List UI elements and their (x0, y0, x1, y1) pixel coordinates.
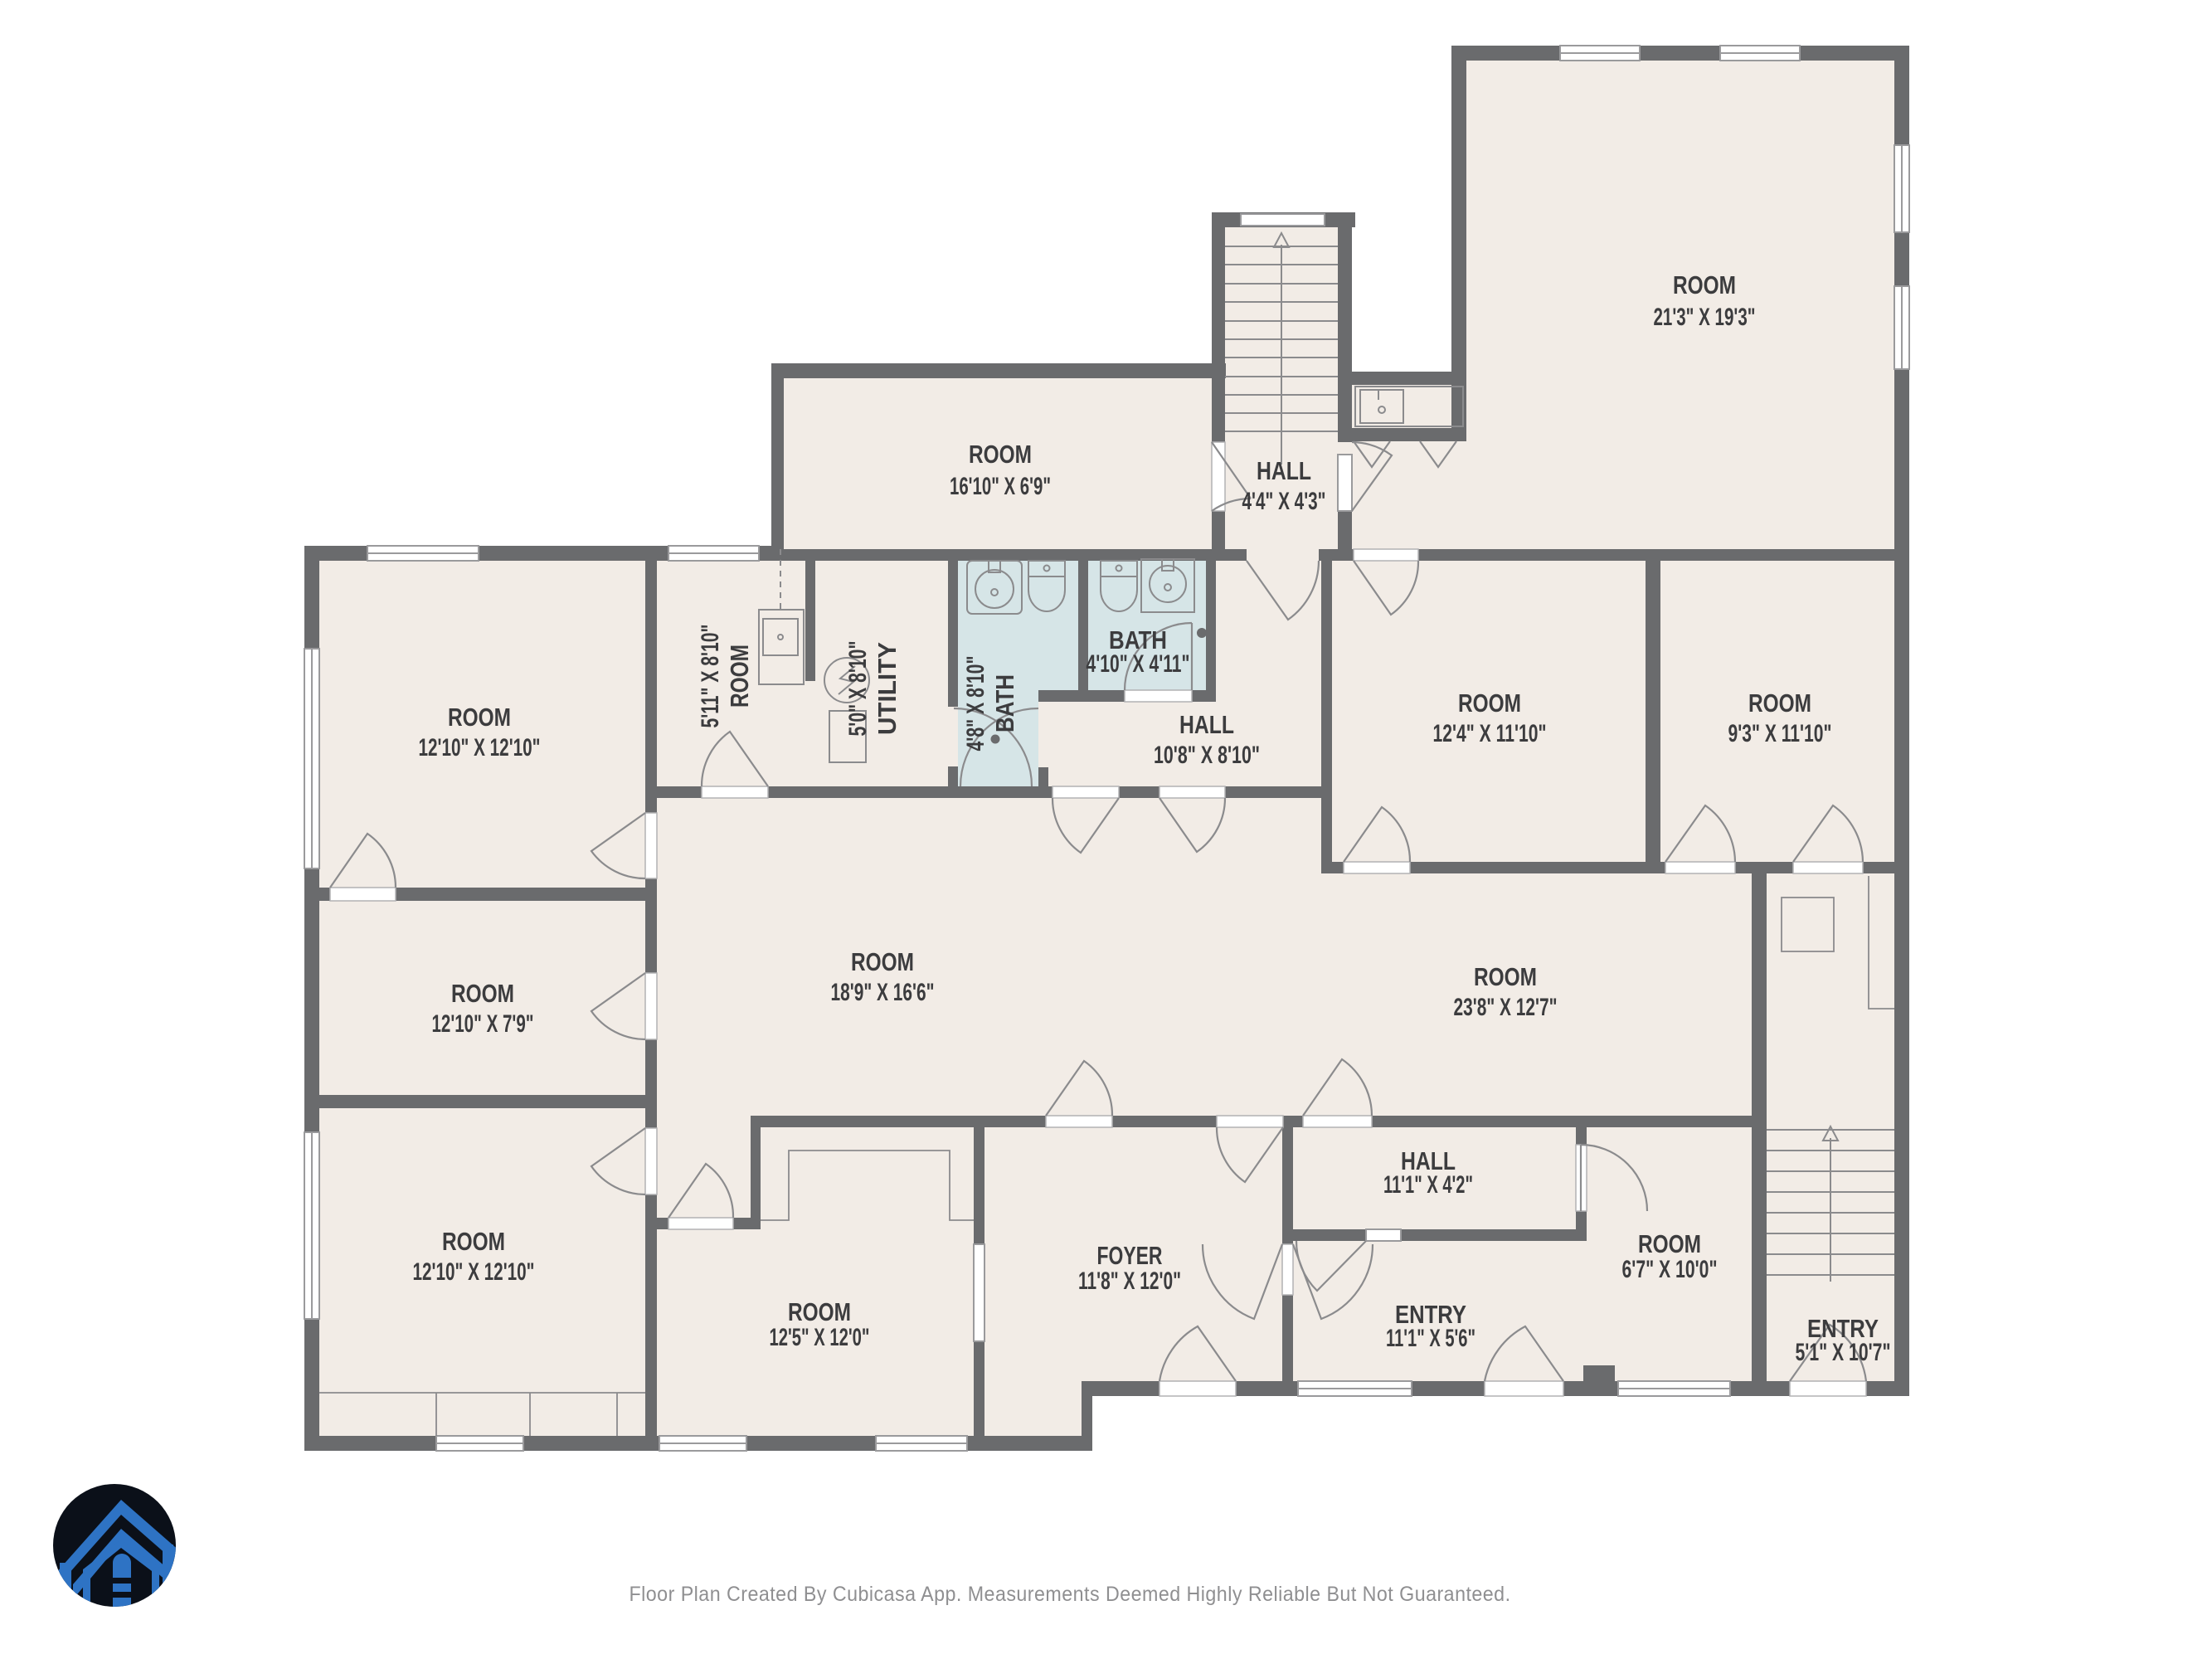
svg-text:Floor Plan Created By Cubicasa: Floor Plan Created By Cubicasa App. Meas… (630, 1583, 1511, 1606)
svg-text:5'0" X 8'10": 5'0" X 8'10" (844, 641, 872, 737)
svg-text:12'10" X 12'10": 12'10" X 12'10" (413, 1258, 535, 1286)
svg-text:11'1" X 5'6": 11'1" X 5'6" (1386, 1325, 1475, 1352)
svg-text:12'10" X 12'10": 12'10" X 12'10" (419, 734, 541, 761)
svg-text:UTILITY: UTILITY (873, 642, 902, 735)
svg-text:11'8" X 12'0": 11'8" X 12'0" (1078, 1267, 1181, 1295)
svg-text:5'11" X 8'10": 5'11" X 8'10" (697, 625, 724, 728)
svg-text:5'1" X 10'7": 5'1" X 10'7" (1796, 1339, 1891, 1366)
svg-text:23'8" X 12'7": 23'8" X 12'7" (1454, 994, 1558, 1021)
svg-text:21'3" X 19'3": 21'3" X 19'3" (1654, 304, 1756, 331)
svg-text:ROOM: ROOM (1474, 962, 1537, 991)
svg-text:HALL: HALL (1257, 456, 1311, 485)
svg-text:12'10" X 7'9": 12'10" X 7'9" (432, 1010, 534, 1038)
svg-text:ROOM: ROOM (1638, 1229, 1701, 1258)
svg-text:12'5" X 12'0": 12'5" X 12'0" (770, 1324, 870, 1351)
svg-text:4'8" X 8'10": 4'8" X 8'10" (962, 656, 989, 752)
svg-text:ROOM: ROOM (451, 979, 514, 1008)
svg-text:4'10" X 4'11": 4'10" X 4'11" (1087, 650, 1190, 678)
svg-text:HALL: HALL (1179, 710, 1234, 739)
svg-text:6'7" X 10'0": 6'7" X 10'0" (1622, 1256, 1718, 1283)
svg-text:ROOM: ROOM (1458, 688, 1521, 718)
svg-text:ROOM: ROOM (1748, 688, 1811, 718)
svg-text:ROOM: ROOM (788, 1297, 851, 1326)
svg-text:9'3" X 11'10": 9'3" X 11'10" (1728, 720, 1832, 747)
svg-text:4'4" X 4'3": 4'4" X 4'3" (1242, 488, 1326, 515)
svg-text:10'8" X 8'10": 10'8" X 8'10" (1154, 742, 1260, 769)
svg-text:18'9" X 16'6": 18'9" X 16'6" (831, 979, 935, 1006)
svg-text:ROOM: ROOM (442, 1227, 505, 1256)
svg-text:ROOM: ROOM (969, 440, 1032, 469)
svg-text:FOYER: FOYER (1097, 1241, 1163, 1270)
svg-text:ROOM: ROOM (448, 703, 511, 732)
svg-text:16'10" X 6'9": 16'10" X 6'9" (950, 473, 1051, 500)
svg-text:ROOM: ROOM (1673, 270, 1736, 299)
svg-text:ROOM: ROOM (851, 947, 914, 976)
svg-text:BATH: BATH (990, 674, 1019, 732)
svg-text:12'4" X 11'10": 12'4" X 11'10" (1433, 720, 1547, 747)
svg-text:ROOM: ROOM (725, 645, 754, 708)
svg-text:11'1" X 4'2": 11'1" X 4'2" (1383, 1171, 1473, 1199)
